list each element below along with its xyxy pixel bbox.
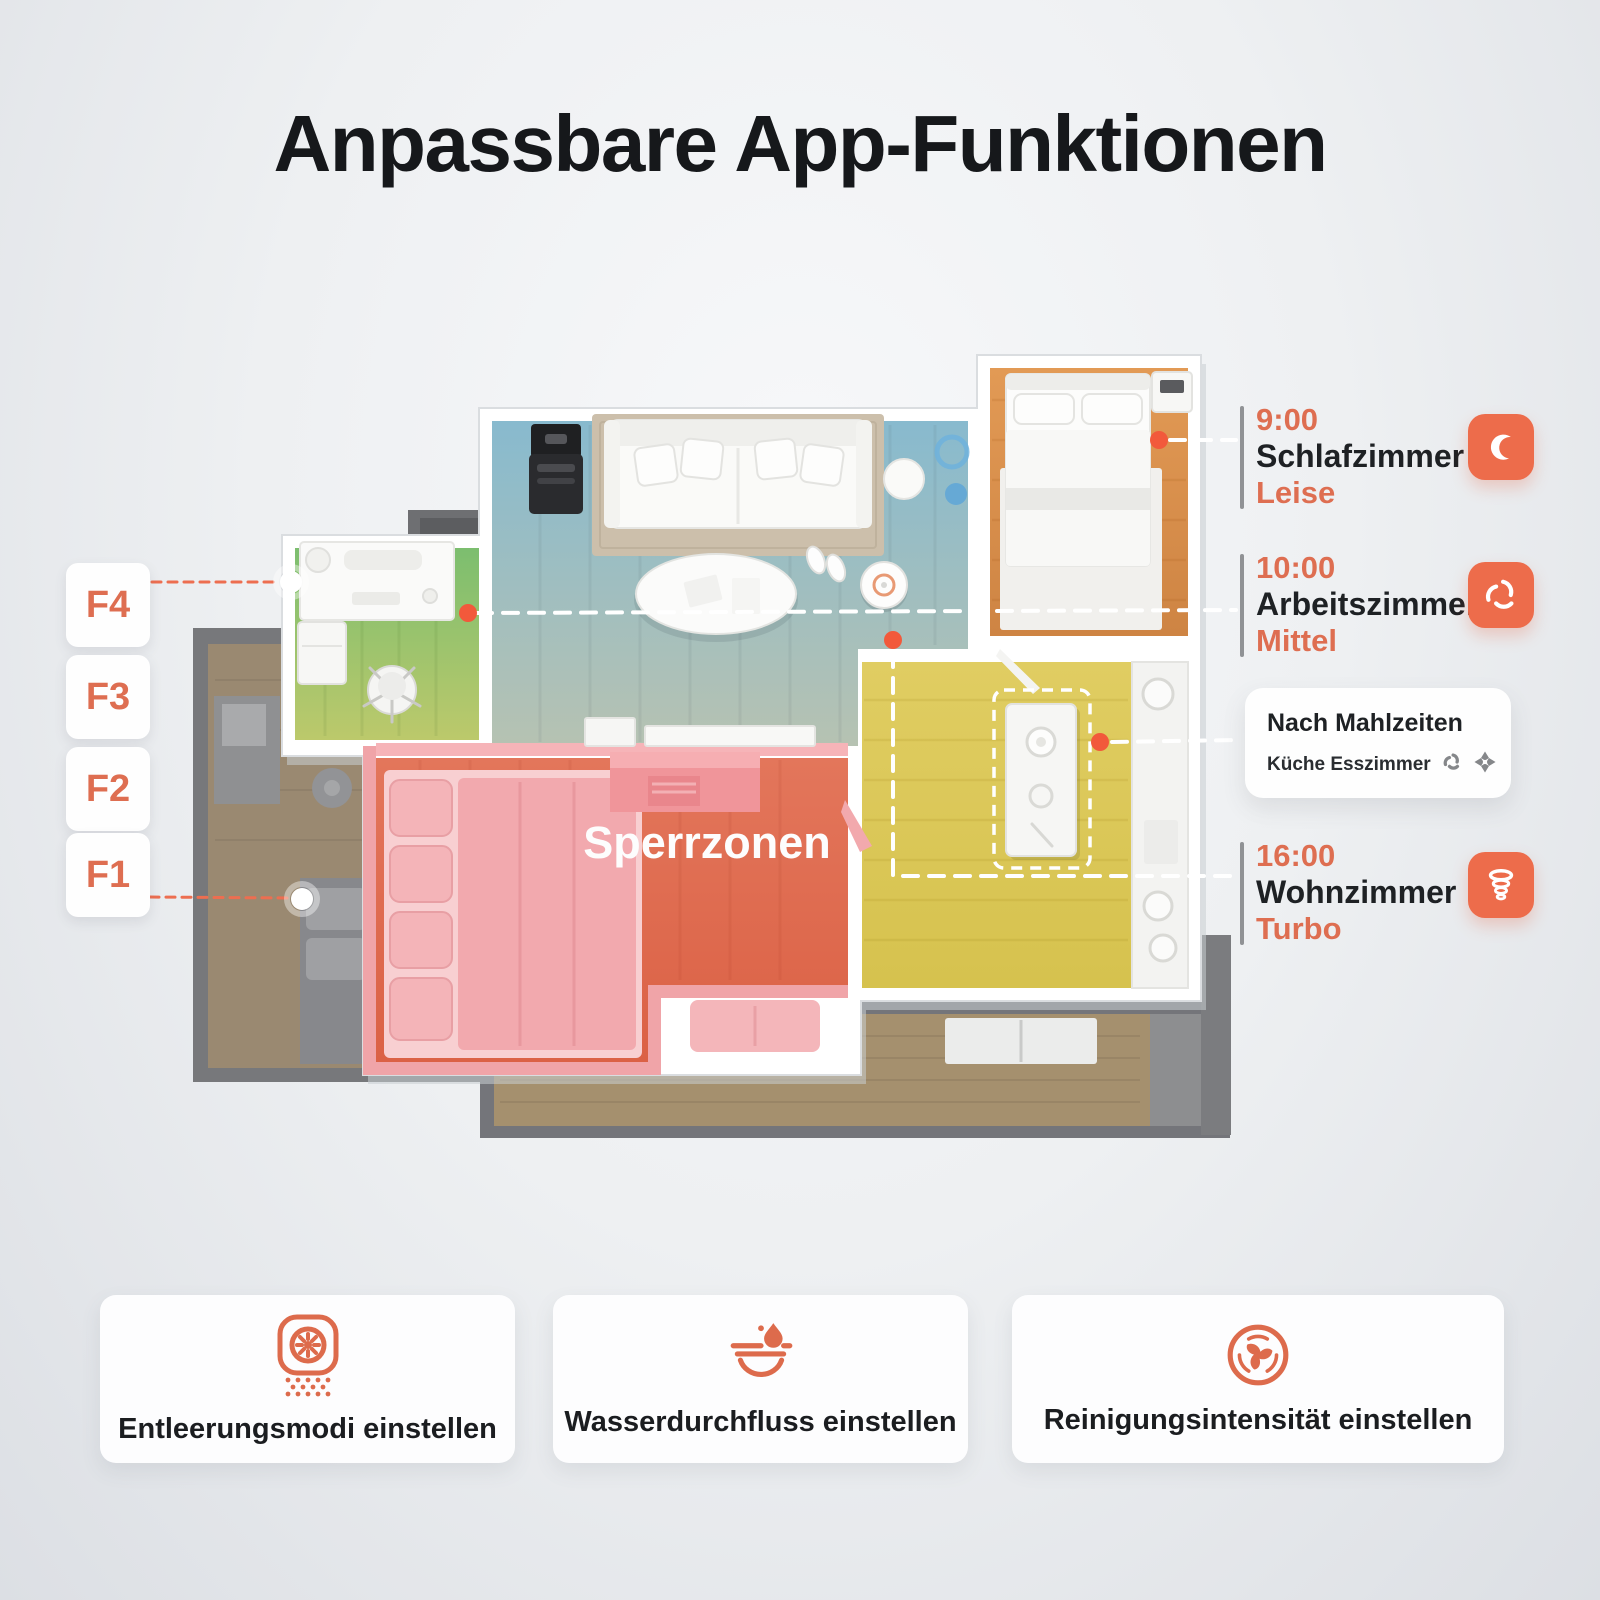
zone-card-f3[interactable]: F3 [66,655,150,739]
callout-bedroom-mode: Leise [1256,475,1464,511]
callout-office: 10:00 Arbeitszimmer Mittel [1256,550,1478,659]
moon-icon [1468,414,1534,480]
callout-office-time: 10:00 [1256,550,1478,586]
dock-station [529,424,583,514]
feature-label: Entleerungsmodi einstellen [118,1413,497,1446]
swirl-gray-icon [1440,750,1464,779]
feature-label: Reinigungsintensität einstellen [1044,1404,1473,1437]
zone-card-f1[interactable]: F1 [66,833,150,917]
feature-card-water-flow[interactable]: Wasserdurchfluss einstellen [553,1295,968,1463]
callout-bar [1240,406,1244,509]
callout-kitchen-card: Nach Mahlzeiten Küche Esszimmer [1245,688,1511,798]
kitchen-island [1006,704,1080,860]
pink-counter [610,752,760,812]
fan-intensity-icon [1224,1321,1292,1394]
feature-card-cleaning-intensity[interactable]: Reinigungsintensität einstellen [1012,1295,1504,1463]
feature-card-empty-modes[interactable]: Entleerungsmodi einstellen [100,1295,515,1463]
callout-bar [1240,842,1244,945]
callout-living: 16:00 Wohnzimmer Turbo [1256,838,1456,947]
side-table [884,459,924,499]
tornado-icon [1468,852,1534,918]
callout-bedroom-room: Schlafzimmer [1256,438,1464,475]
callout-living-mode: Turbo [1256,911,1456,947]
mop-gray-icon [1473,750,1497,779]
bed-double [1006,374,1150,566]
callout-bar [1240,554,1244,657]
feature-label: Wasserdurchfluss einstellen [564,1406,956,1439]
page-canvas: Anpassbare App-Funktionen [0,0,1600,1600]
pink-bed [384,770,642,1058]
swirl-icon [1468,562,1534,628]
callout-bedroom: 9:00 Schlafzimmer Leise [1256,402,1464,511]
callout-office-room: Arbeitszimmer [1256,586,1478,623]
callout-kitchen-title: Nach Mahlzeiten [1267,709,1511,738]
robot-vacuum [860,562,908,612]
callout-living-time: 16:00 [1256,838,1456,874]
callout-office-mode: Mittel [1256,623,1478,659]
auto-empty-icon [273,1312,343,1403]
callout-bedroom-time: 9:00 [1256,402,1464,438]
sperrzonen-label: Sperrzonen [583,817,831,868]
water-flow-icon [727,1319,795,1396]
zone-card-f2[interactable]: F2 [66,747,150,831]
callout-living-room: Wohnzimmer [1256,874,1456,911]
callout-kitchen-rooms: Küche Esszimmer [1267,754,1431,776]
map-marker-dot [945,483,967,505]
zone-card-f4[interactable]: F4 [66,563,150,647]
